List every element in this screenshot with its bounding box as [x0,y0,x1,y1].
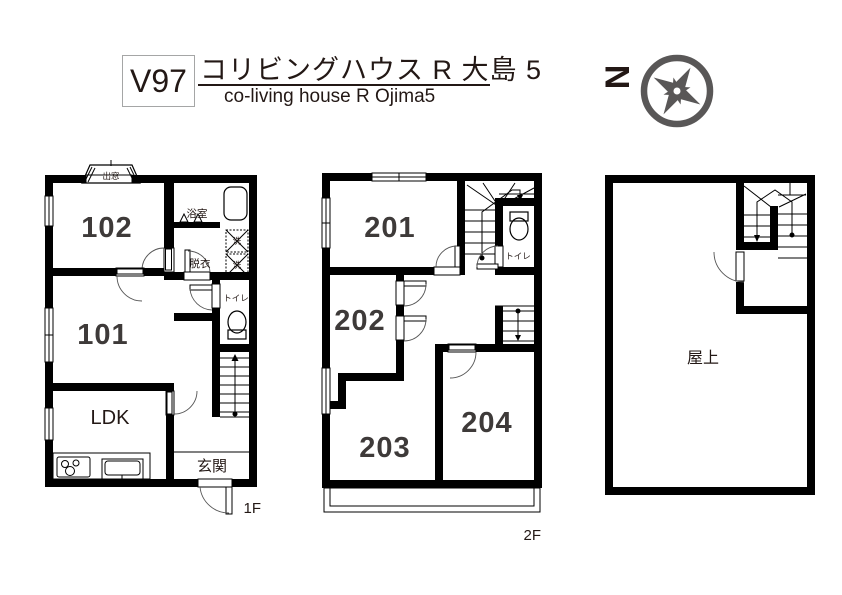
floor-plan-roof: 屋上 [600,170,820,500]
room-label-202: 202 [334,305,385,337]
bathtub-icon [224,187,247,220]
room-label-ldk: LDK [91,407,131,429]
room-label-entrance: 玄関 [197,458,227,475]
kitchen-sink-icon [102,459,143,482]
plan-code-box: V97 [122,55,195,107]
balcony [324,488,540,512]
doors-2f [396,246,503,378]
stairs-1f [220,354,249,417]
room-label-204: 204 [461,407,512,439]
room-label-rooftop: 屋上 [687,349,719,367]
walls-roof [605,175,815,495]
washer-label: 洗 [233,260,242,270]
room-label-203: 203 [359,432,410,464]
washer-label: 洗 [233,236,242,246]
room-label-101: 101 [77,319,128,351]
floor-plan-2f: 201 202 203 204 トイレ 2F [315,165,550,545]
room-label-toilet-1f: トイレ [223,293,249,303]
kitchen-stove-icon [57,457,90,477]
door-roof [714,252,744,282]
room-label-toilet-2f: トイレ [505,251,531,261]
floor-label-1f: 1F [243,500,261,517]
north-label: N [599,65,637,90]
toilet-fixture-1f [228,311,246,339]
bay-window-label: 出窓 [102,171,120,181]
floor-plan-page: { "header": { "plan_code": "V97", "title… [0,0,842,595]
room-label-201: 201 [364,212,415,244]
room-label-dressing: 脱衣 [190,257,211,270]
room-label-bathroom: 浴室 [187,207,208,220]
toilet-fixture-2f [510,212,528,240]
plan-code-text: V97 [130,63,187,100]
room-label-102: 102 [81,212,132,244]
floor-label-2f: 2F [523,527,541,544]
compass-star [654,68,701,115]
washing-machines: 洗 洗 [226,230,248,276]
floor-plan-1f: 出窓 洗 洗 [40,155,270,520]
kitchen-counter [53,453,150,482]
page-title: コリビングハウス R 大島 5 [200,48,542,87]
page-subtitle: co-living house R Ojima5 [224,86,435,108]
compass-icon: N [595,45,720,140]
